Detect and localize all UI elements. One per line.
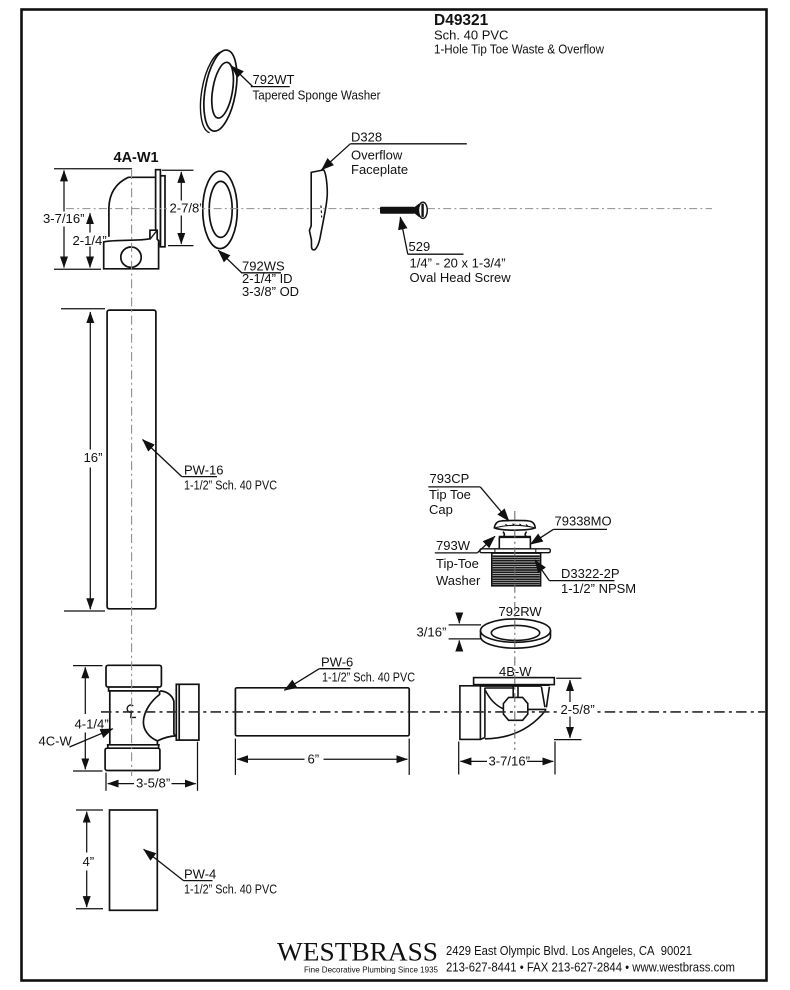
svg-text:792WT: 792WT — [253, 72, 295, 87]
svg-text:793W: 793W — [436, 538, 471, 553]
svg-text:4C-W: 4C-W — [39, 733, 73, 748]
svg-text:4A-W1: 4A-W1 — [114, 150, 159, 166]
svg-text:Washer: Washer — [436, 573, 481, 588]
svg-text:6”: 6” — [308, 752, 320, 767]
svg-text:Tapered Sponge Washer: Tapered Sponge Washer — [253, 87, 382, 102]
svg-text:3-5/8”: 3-5/8” — [136, 776, 170, 791]
svg-text:529: 529 — [409, 239, 431, 254]
svg-text:2-5/8”: 2-5/8” — [561, 702, 595, 717]
svg-text:2-1/4”: 2-1/4” — [73, 233, 107, 248]
svg-text:1-1/2” Sch. 40 PVC: 1-1/2” Sch. 40 PVC — [322, 669, 415, 684]
svg-text:D49321: D49321 — [434, 12, 489, 29]
svg-text:WESTBRASS: WESTBRASS — [277, 937, 438, 967]
svg-text:79338MO: 79338MO — [555, 514, 612, 529]
svg-text:D328: D328 — [351, 130, 382, 145]
svg-text:1-1/2” NPSM: 1-1/2” NPSM — [561, 581, 636, 596]
svg-text:3-3/8” OD: 3-3/8” OD — [242, 284, 299, 299]
svg-text:1-1/2” Sch. 40 PVC: 1-1/2” Sch. 40 PVC — [184, 882, 277, 897]
svg-text:3-7/16”: 3-7/16” — [489, 753, 531, 768]
svg-text:792RW: 792RW — [499, 604, 543, 619]
svg-text:PW-4: PW-4 — [184, 866, 216, 881]
svg-text:PW-16: PW-16 — [184, 462, 224, 477]
svg-text:4”: 4” — [83, 854, 95, 869]
svg-text:4-1/4”: 4-1/4” — [75, 716, 109, 731]
svg-text:16”: 16” — [84, 450, 103, 465]
svg-text:Cap: Cap — [429, 502, 453, 517]
svg-text:4B-W: 4B-W — [499, 664, 532, 679]
svg-text:3-7/16”: 3-7/16” — [43, 211, 85, 226]
svg-text:Oval Head Screw: Oval Head Screw — [410, 270, 512, 285]
svg-text:1-1/2” Sch. 40 PVC: 1-1/2” Sch. 40 PVC — [184, 478, 277, 493]
svg-text:1-Hole Tip Toe Waste & Overflo: 1-Hole Tip Toe Waste & Overflow — [434, 42, 605, 57]
svg-text:793CP: 793CP — [430, 471, 470, 486]
svg-text:3/16”: 3/16” — [417, 624, 447, 639]
svg-text:Fine Decorative Plumbing Since: Fine Decorative Plumbing Since 1935 — [304, 965, 438, 975]
svg-text:2429 East Olympic Blvd. Los An: 2429 East Olympic Blvd. Los Angeles, CA … — [446, 943, 692, 958]
svg-text:D3322-2P: D3322-2P — [561, 566, 620, 581]
svg-text:1/4” - 20 x 1-3/4”: 1/4” - 20 x 1-3/4” — [410, 256, 506, 271]
svg-text:Tip Toe: Tip Toe — [429, 487, 471, 502]
svg-text:PW-6: PW-6 — [321, 654, 353, 669]
svg-text:Tip-Toe: Tip-Toe — [436, 556, 479, 571]
svg-text:Faceplate: Faceplate — [351, 162, 408, 177]
svg-text:Overflow: Overflow — [351, 148, 403, 163]
svg-text:213-627-8441 • FAX 213-627-284: 213-627-8441 • FAX 213-627-2844 • www.we… — [446, 960, 735, 975]
svg-text:Sch. 40 PVC: Sch. 40 PVC — [434, 28, 508, 43]
svg-text:2-7/8”: 2-7/8” — [170, 201, 204, 216]
